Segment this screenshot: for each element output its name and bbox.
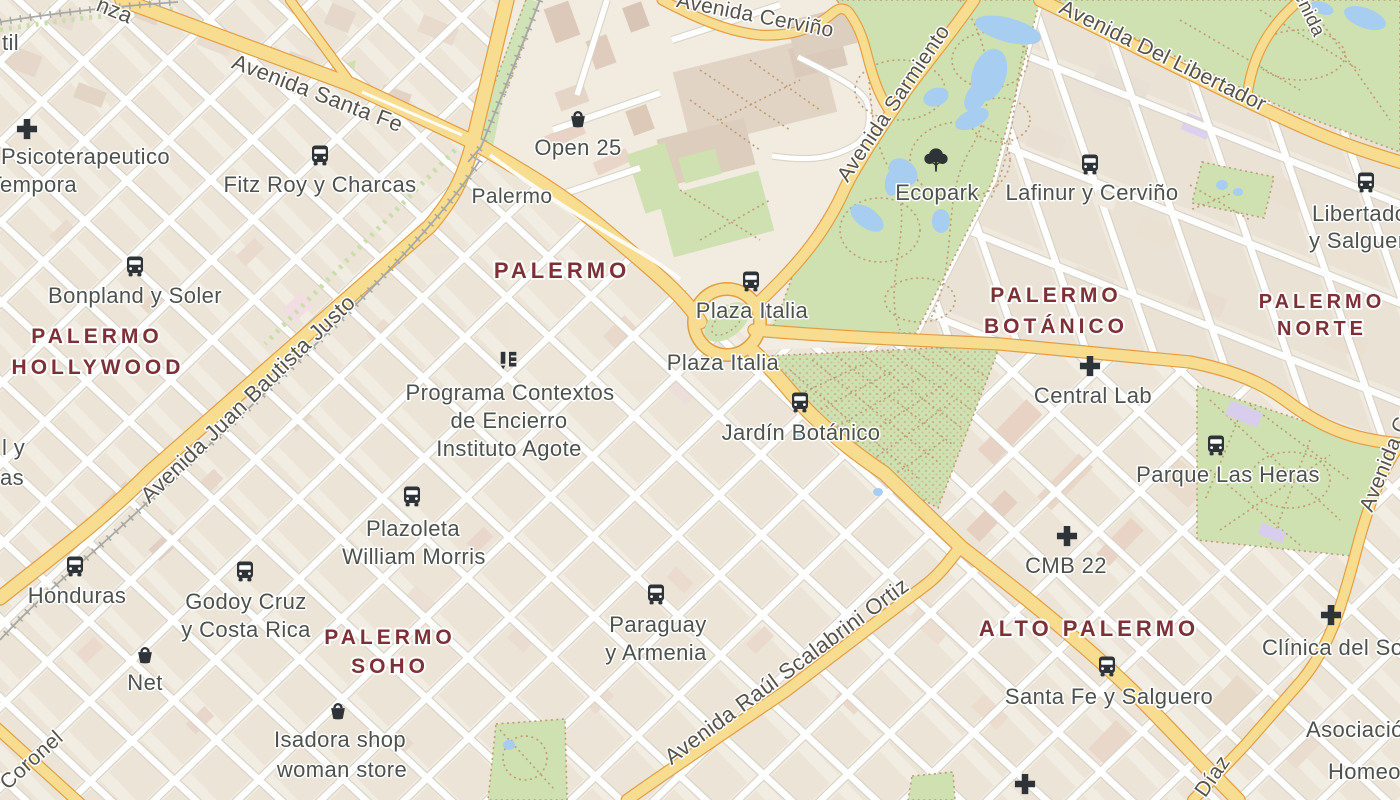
- svg-text:Clínica del Sol: Clínica del Sol: [1262, 635, 1400, 660]
- svg-text:PALERMO: PALERMO: [1259, 291, 1386, 313]
- svg-text:Paraguay: Paraguay: [609, 612, 706, 637]
- svg-text:CMB 22: CMB 22: [1025, 553, 1107, 578]
- svg-text:Plaza Italia: Plaza Italia: [696, 298, 809, 323]
- svg-text:Open 25: Open 25: [534, 135, 621, 160]
- svg-text:William Morris: William Morris: [342, 544, 486, 569]
- svg-text:y Costa Rica: y Costa Rica: [181, 617, 311, 642]
- svg-text:Ecopark: Ecopark: [895, 180, 979, 205]
- svg-text:Godoy Cruz: Godoy Cruz: [185, 589, 306, 614]
- svg-text:Instituto Agote: Instituto Agote: [436, 436, 581, 461]
- svg-text:Santa Fe y Salguero: Santa Fe y Salguero: [1005, 684, 1213, 709]
- svg-text:as: as: [0, 465, 24, 490]
- svg-text:Isadora shop: Isadora shop: [274, 727, 406, 752]
- svg-text:Bonpland y Soler: Bonpland y Soler: [48, 283, 222, 308]
- svg-text:Net: Net: [127, 670, 162, 695]
- svg-text:PALERMO: PALERMO: [494, 258, 630, 283]
- svg-text:Fitz Roy y Charcas: Fitz Roy y Charcas: [223, 172, 416, 197]
- svg-text:Homeopática: Homeopática: [1328, 759, 1400, 784]
- svg-text:SOHO: SOHO: [351, 655, 429, 678]
- svg-text:BOTÁNICO: BOTÁNICO: [984, 315, 1128, 338]
- svg-text:HOLLYWOOD: HOLLYWOOD: [12, 356, 185, 379]
- svg-text:Jardín Botánico: Jardín Botánico: [722, 420, 881, 445]
- svg-text:Palermo: Palermo: [472, 185, 553, 208]
- svg-text:NORTE: NORTE: [1277, 318, 1367, 340]
- svg-text:Plaza Italia: Plaza Italia: [667, 350, 780, 375]
- svg-text:l y: l y: [2, 435, 25, 460]
- svg-text:til: til: [2, 30, 19, 55]
- svg-text:PALERMO: PALERMO: [31, 325, 162, 348]
- svg-text:Plazoleta: Plazoleta: [366, 516, 460, 541]
- svg-text:PALERMO: PALERMO: [990, 284, 1121, 307]
- svg-text:Libertador: Libertador: [1312, 201, 1400, 226]
- svg-text:Lafinur y Cerviño: Lafinur y Cerviño: [1005, 180, 1178, 205]
- svg-text:de Encierro: de Encierro: [451, 408, 568, 433]
- svg-text:y Armenia: y Armenia: [605, 640, 707, 665]
- svg-text:woman store: woman store: [276, 757, 407, 782]
- svg-text:Asociación: Asociación: [1306, 717, 1400, 742]
- svg-text:Parque Las Heras: Parque Las Heras: [1136, 462, 1320, 487]
- svg-text:ALTO PALERMO: ALTO PALERMO: [979, 616, 1199, 641]
- svg-text:Central Lab: Central Lab: [1034, 383, 1152, 408]
- svg-text:Tempora: Tempora: [0, 172, 77, 197]
- svg-text:Psicoterapeutico: Psicoterapeutico: [1, 144, 170, 169]
- svg-text:Programa Contextos: Programa Contextos: [406, 380, 615, 405]
- svg-text:y Salguero: y Salguero: [1309, 228, 1400, 253]
- svg-text:Honduras: Honduras: [28, 583, 127, 608]
- svg-text:PALERMO: PALERMO: [324, 626, 455, 649]
